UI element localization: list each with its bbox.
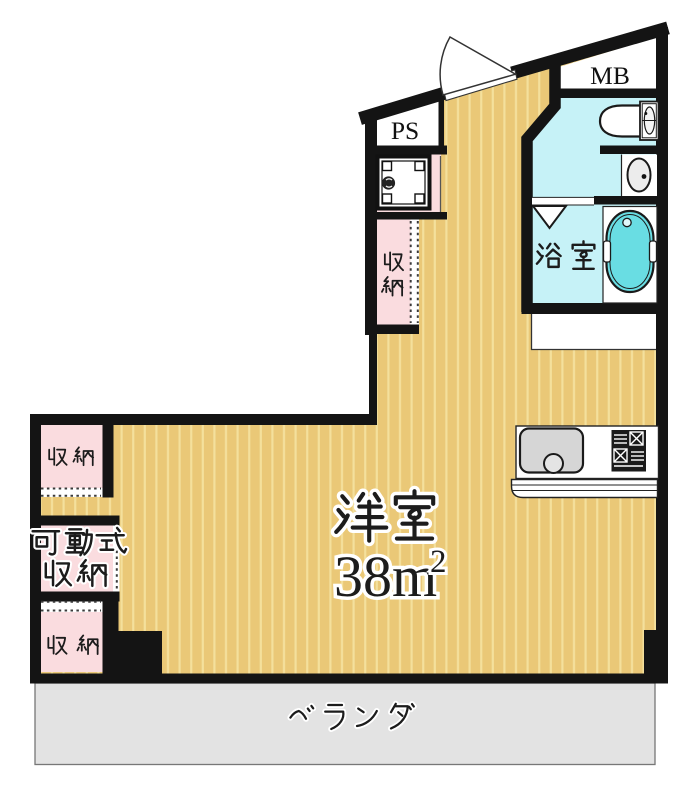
svg-text:38m: 38m xyxy=(334,544,437,609)
svg-text:PS: PS xyxy=(391,116,419,145)
svg-text:MB: MB xyxy=(590,61,630,90)
svg-text:2: 2 xyxy=(430,544,447,580)
